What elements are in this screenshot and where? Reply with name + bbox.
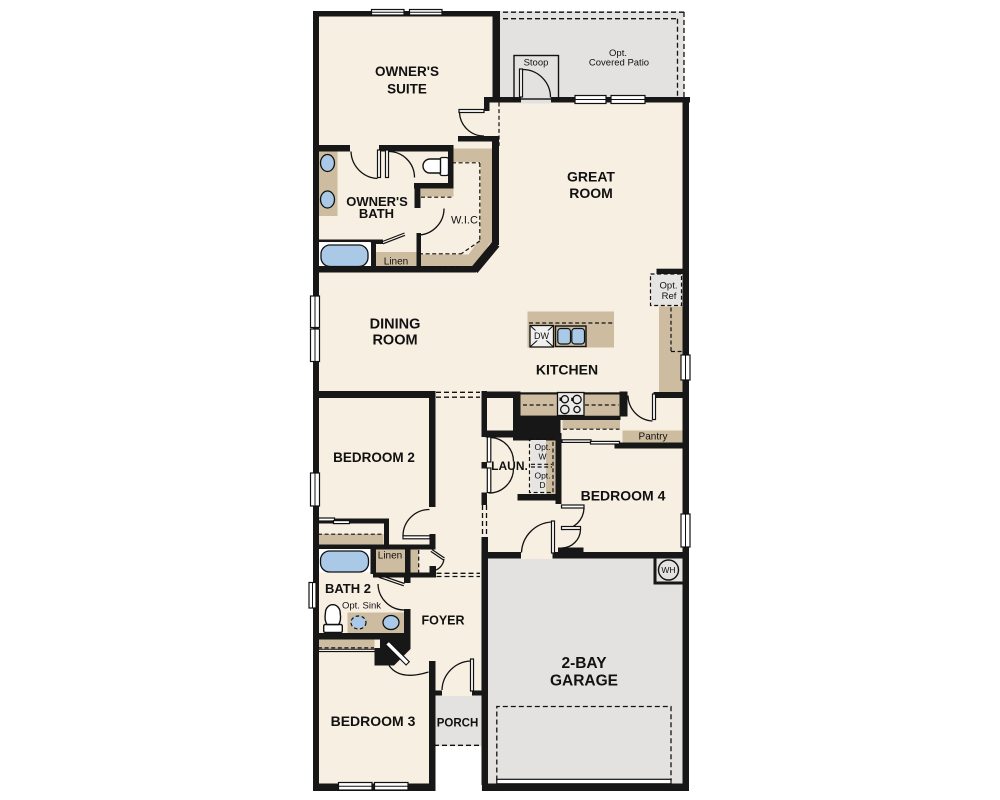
svg-text:DW: DW [534,331,549,341]
svg-text:GREAT: GREAT [567,169,615,185]
svg-text:BEDROOM 2: BEDROOM 2 [333,450,415,465]
svg-text:ROOM: ROOM [372,333,417,349]
svg-text:BATH 2: BATH 2 [325,581,371,596]
svg-text:BATH: BATH [359,206,394,221]
svg-text:2-BAY: 2-BAY [561,655,607,672]
svg-text:FOYER: FOYER [421,614,464,628]
svg-text:BEDROOM 4: BEDROOM 4 [581,488,666,504]
svg-text:DINING: DINING [370,317,421,333]
svg-text:Pantry: Pantry [639,432,668,443]
svg-text:ROOM: ROOM [569,185,613,201]
svg-text:Opt.: Opt. [534,442,550,452]
svg-text:Opt.: Opt. [660,281,678,292]
svg-text:Ref: Ref [662,291,677,302]
svg-text:GARAGE: GARAGE [550,673,618,690]
svg-text:Opt. Sink: Opt. Sink [342,601,381,612]
svg-text:Covered Patio: Covered Patio [589,58,649,69]
svg-text:LAUN.: LAUN. [491,459,528,473]
svg-text:D: D [539,480,545,490]
svg-text:KITCHEN: KITCHEN [536,362,598,378]
svg-text:Linen: Linen [384,257,408,268]
svg-text:PORCH: PORCH [437,718,479,730]
svg-text:W.I.C.: W.I.C. [451,215,481,227]
svg-text:Opt.: Opt. [534,471,550,481]
svg-text:OWNER'S: OWNER'S [375,64,439,79]
svg-text:Linen: Linen [378,551,402,562]
svg-text:SUITE: SUITE [387,82,427,97]
svg-text:Stoop: Stoop [524,58,549,69]
svg-text:W: W [538,452,546,462]
svg-text:WH: WH [661,565,675,575]
svg-text:BEDROOM 3: BEDROOM 3 [331,713,416,729]
